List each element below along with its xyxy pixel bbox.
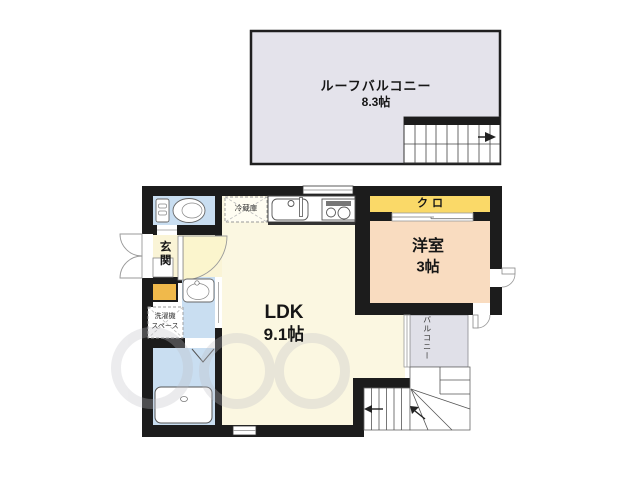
roof-balcony-size: 8.3帖	[362, 96, 391, 110]
washer-space-label-line2: スペース	[151, 322, 178, 332]
entrance-door-leaf-lower	[120, 256, 142, 278]
ldk-size: 9.1帖	[264, 325, 305, 345]
hall-door-leaf	[178, 236, 183, 280]
wall-right	[490, 186, 502, 315]
kitchen-counter	[268, 196, 355, 225]
western-right-door-arc	[502, 274, 515, 287]
wall-stairs-left	[353, 378, 364, 437]
entrance-door-leaf-upper	[120, 234, 142, 256]
ldk-nook-area	[355, 315, 405, 379]
closet-label: クロ	[417, 198, 447, 211]
toilet-icon	[156, 199, 205, 223]
western-room-label: 洋室	[412, 238, 444, 256]
kitchen-faucet	[288, 201, 294, 207]
shoe-cabinet	[152, 283, 177, 301]
western-room-size: 3帖	[416, 258, 439, 275]
washbasin-faucet	[195, 281, 199, 285]
kitchen-counter-edge	[268, 222, 355, 225]
entrance-label: 玄関	[157, 241, 170, 268]
refrigerator-label: 冷蔵庫	[235, 205, 258, 214]
western-right-door-leaf	[502, 268, 515, 274]
washbasin-icon	[183, 279, 214, 302]
wall-ldk-western	[355, 186, 370, 315]
roof-balcony-label: ルーフバルコニー	[321, 80, 432, 95]
washer-space-label-line1: 洗濯機	[151, 312, 178, 322]
western-bottom-door-leaf	[473, 315, 478, 328]
entrance-door-opening	[142, 234, 153, 278]
floorplan-page: ルーフバルコニー 8.3帖 クロ 洋室 3帖 LDK 9.1帖 玄関 バルコニー…	[0, 0, 640, 480]
kitchen-faucet-stem	[300, 198, 303, 217]
wall-closet-bottom-left	[370, 212, 392, 221]
washer-space-label: 洗濯機 スペース	[151, 312, 178, 332]
balcony-strip-area	[410, 315, 468, 367]
floorplan-drawing	[0, 0, 640, 480]
ldk-label: LDK	[264, 302, 303, 324]
western-right-door-opening	[490, 269, 502, 287]
stove-grill	[326, 201, 351, 206]
wall-closet-bottom-right	[473, 212, 490, 221]
roof-stairs-wall	[404, 117, 500, 125]
balcony-label: バルコニー	[422, 316, 431, 361]
western-bottom-door-opening	[473, 303, 490, 315]
